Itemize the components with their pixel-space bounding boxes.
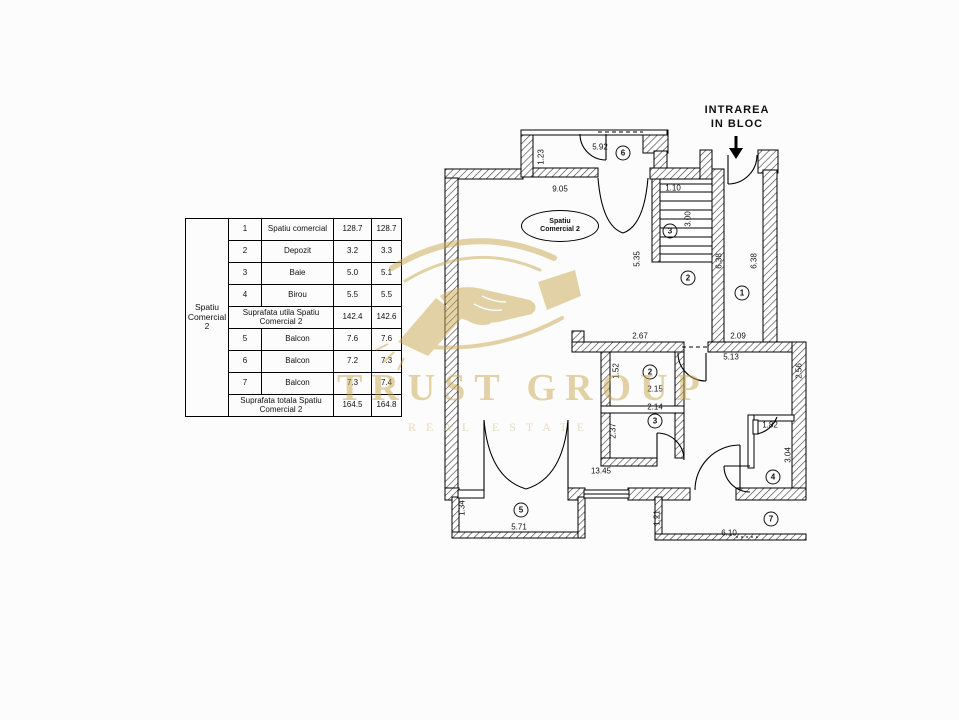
room-number-badge: 2 [681,271,696,286]
dimension-label: 5.13 [723,353,739,362]
dimension-label: 3.00 [684,211,693,227]
room-number-badge: 7 [764,512,779,527]
room-oval-line1: Spatiu [549,218,570,226]
dimension-label: 5.71 [511,523,527,532]
doors [484,134,777,492]
walls [445,130,806,540]
screenshot-canvas: Spatiu Comercial 21Spatiu comercial128.7… [0,0,959,720]
room-number-badge: 5 [514,503,529,518]
dimension-label: 1.52 [612,363,621,379]
room-number-badge: 3 [648,414,663,429]
dimension-label: 2.67 [632,332,648,341]
dimension-label: 1.23 [537,149,546,165]
dimension-label: 1.82 [762,421,778,430]
dimension-label: 2.15 [647,385,663,394]
entrance-arrow-icon [729,136,743,159]
room-number-badge: 3 [663,224,678,239]
entrance-label-line1: INTRAREA [705,104,770,118]
dimension-label: 1.10 [665,184,681,193]
dimension-label: 13.45 [591,467,611,476]
room-oval-label: Spatiu Comercial 2 [521,210,599,242]
room-oval-line2: Comercial 2 [540,226,580,234]
partitions [458,130,794,498]
dimension-label: 6.10 [721,529,737,538]
entrance-label-line2: IN BLOC [705,118,770,132]
dimension-label: 6.38 [715,253,724,269]
room-number-badge: 6 [616,146,631,161]
dimension-label: 2.09 [730,332,746,341]
dimension-label: 9.05 [552,185,568,194]
dimension-label: 3.04 [784,447,793,463]
room-number-badge: 4 [766,470,781,485]
entrance-label: INTRAREA IN BLOC [705,104,770,132]
dimension-label: 2.37 [609,423,618,439]
dimension-label: 2.56 [795,363,804,379]
dimension-label: 2.14 [647,403,663,412]
dimension-label: 5.92 [592,143,608,152]
floor-plan-drawing [0,0,959,720]
dimension-label: 1.34 [458,500,467,516]
room-number-badge: 2 [643,365,658,380]
dimension-label: 5.35 [633,251,642,267]
dimension-label: 1.21 [653,510,662,526]
dimension-label: 6.38 [750,253,759,269]
room-number-badge: 1 [735,286,750,301]
